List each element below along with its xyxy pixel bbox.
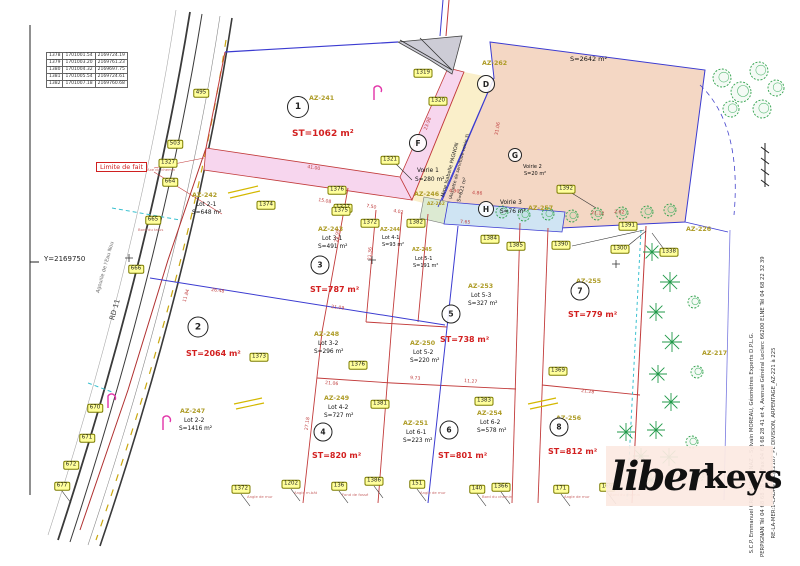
- map-text-label: S=327 m²: [468, 301, 497, 307]
- dimension-label: 9.73: [410, 377, 421, 383]
- point-note-label: Angle de mur: [420, 491, 446, 495]
- lot-total-surface-label: ST=820 m²: [312, 452, 361, 460]
- logo-script-part: liber: [611, 453, 706, 500]
- lot-circle-D: D: [477, 75, 495, 93]
- point-note-label: Fond de fossé: [342, 493, 368, 497]
- survey-point-label: 1369: [549, 367, 568, 376]
- survey-point-label: 151: [409, 480, 425, 489]
- survey-point-label: 1383: [475, 397, 494, 406]
- dimension-label: 27.18: [306, 417, 313, 431]
- parcel-id-label: AZ-252: [427, 203, 445, 208]
- parcel-id-label: AZ-254: [477, 411, 502, 418]
- lot-total-surface-label: ST=1062 m²: [292, 130, 354, 139]
- map-text-label: Lot 6-1: [406, 430, 426, 436]
- lot-circle-7: 7: [571, 282, 590, 301]
- logo-bold-part: keys: [704, 457, 782, 496]
- survey-point-label: 1372: [232, 485, 251, 494]
- map-text-label: Lot 5-1: [415, 257, 432, 262]
- lot-circle-3: 3: [311, 256, 330, 275]
- point-note-label: Angle de mur: [247, 495, 273, 499]
- map-text-label: S=20 m²: [524, 172, 546, 177]
- parcel-id-label: AZ-253: [468, 284, 493, 291]
- dimension-label: 4.86: [472, 192, 483, 198]
- surveyor-address-line: PERPIGNAN Tél 04 68 68 28 40 - Fax 04 68…: [760, 329, 766, 557]
- survey-point-label: 672: [63, 461, 79, 470]
- dimension-label: 2.62: [614, 211, 625, 217]
- map-text-label: Lot 5-2: [413, 350, 433, 356]
- lot-circle-8: 8: [550, 418, 569, 437]
- survey-point-label: 1381: [371, 400, 390, 409]
- survey-point-label: 665: [145, 216, 161, 225]
- point-note-label: Bord du talus: [138, 228, 163, 232]
- parcel-id-label: AZ-246: [414, 192, 439, 199]
- parcel-id-label: AZ-251: [403, 421, 428, 428]
- survey-point-label: 503: [167, 140, 183, 149]
- map-text-label: S=93 m²: [382, 243, 404, 248]
- parcel-id-label: AZ-244: [380, 228, 400, 233]
- dimension-label: 7.50: [366, 205, 377, 212]
- parcel-id-label: AZ-226: [686, 227, 711, 234]
- dimension-label: 23.98: [425, 117, 434, 131]
- lot-total-surface-label: ST=2064 m²: [186, 350, 241, 358]
- parcel-id-label: AZ-245: [412, 248, 432, 253]
- limite-de-fait-label: Limite de fait: [96, 162, 147, 172]
- dimension-label: 21.12: [591, 212, 604, 218]
- survey-point-label: 1375: [332, 207, 351, 216]
- dimension-label: 21.09: [331, 306, 345, 312]
- lot-circle-5: 5: [442, 305, 461, 324]
- point-note-label: Bord du chemin: [482, 495, 512, 499]
- survey-point-label: 1386: [365, 477, 384, 486]
- map-text-label: Lot 2-2: [184, 418, 204, 424]
- survey-point-label: 495: [193, 89, 209, 98]
- map-text-label: Lot 4-2: [328, 405, 348, 411]
- map-text-label: Voirie 2: [523, 165, 542, 170]
- lot-total-surface-label: ST=787 m²: [310, 286, 359, 294]
- survey-point-label: 140: [469, 485, 485, 494]
- map-text-label: S=491 m²: [318, 244, 347, 250]
- map-text-label: S=191 m²: [413, 264, 438, 269]
- survey-point-label: 1384: [481, 235, 500, 244]
- dimension-label: 21.06: [325, 382, 339, 388]
- map-text-label: S=296 m²: [314, 349, 343, 355]
- survey-point-label: 1382: [407, 219, 426, 228]
- lot-total-surface-label: ST=738 m²: [440, 336, 489, 344]
- dimension-label: 31.06: [496, 122, 503, 136]
- dimension-label: 7.65: [460, 221, 471, 227]
- survey-point-label: 136: [331, 482, 347, 491]
- survey-point-label: 1376: [328, 186, 347, 195]
- parcel-id-label: AZ-250: [410, 341, 435, 348]
- lot-circle-2: 2: [188, 317, 209, 338]
- map-text-label: S=280 m²: [415, 177, 444, 183]
- dimension-label: 4.02: [393, 210, 404, 217]
- parcel-id-label: AZ-247: [180, 409, 205, 416]
- map-text-label: S=76 m²: [500, 209, 526, 215]
- parcel-id-label: AZ-242: [192, 193, 217, 200]
- map-text-label: Lot 6-2: [480, 420, 500, 426]
- point-note-label: Angle de mur: [564, 495, 590, 499]
- liberkeys-logo: liberkeys: [606, 446, 773, 506]
- map-text-label: S=2642 m²: [570, 56, 607, 63]
- map-text-label: Voirie 1: [417, 168, 439, 174]
- survey-point-label: 1390: [552, 241, 571, 250]
- map-text-label: Voirie 3: [500, 200, 522, 206]
- survey-point-label: 1327: [159, 159, 178, 168]
- lot-total-surface-label: ST=779 m²: [568, 311, 617, 319]
- map-text-label: S=223 m²: [403, 438, 432, 444]
- surveyor-firm-line: S.C.P. Emmanuel CRETIN-MAITENAZ - Sylvai…: [749, 329, 755, 557]
- dimension-label: 11.84: [184, 289, 192, 303]
- file-reference-line: RE-LA-MER:1-CADASTRE/22187_PL DIVISION, …: [771, 329, 777, 557]
- dimension-label: 21.28: [581, 390, 595, 396]
- dimension-label: 15.08: [318, 199, 332, 206]
- survey-point-label: 1320: [429, 97, 448, 106]
- survey-point-label: 1373: [250, 353, 269, 362]
- survey-point-label: 666: [128, 265, 144, 274]
- survey-point-label: 671: [79, 434, 95, 443]
- map-text-label: S=1416 m²: [179, 426, 212, 432]
- survey-point-label: 1372: [361, 219, 380, 228]
- lot-circle-H: H: [478, 201, 494, 217]
- map-text-label: Lot 2-1: [196, 202, 216, 208]
- survey-point-label: 1392: [557, 185, 576, 194]
- survey-point-label: 1319: [414, 69, 433, 78]
- parcel-id-label: AZ-217: [702, 351, 727, 358]
- dimension-label: 26.48: [211, 289, 225, 295]
- dimension-label: 21.36: [369, 247, 375, 261]
- lot-total-surface-label: ST=801 m²: [438, 452, 487, 460]
- map-text-label: S=578 m²: [477, 428, 506, 434]
- survey-point-label: 1376: [349, 361, 368, 370]
- survey-point-label: 1321: [381, 156, 400, 165]
- parcel-id-label: AZ-262: [482, 61, 507, 68]
- parcel-id-label: AZ-257: [528, 206, 553, 213]
- survey-point-label: 664: [162, 178, 178, 187]
- survey-point-label: 1202: [282, 480, 301, 489]
- map-text-label: S=727 m²: [324, 413, 353, 419]
- map-text-label: S=220 m²: [410, 358, 439, 364]
- lot-circle-6: 6: [440, 421, 459, 440]
- map-text-label: Lot 3-2: [318, 341, 338, 347]
- survey-point-label: 171: [553, 485, 569, 494]
- lot-circle-4: 4: [314, 423, 333, 442]
- survey-point-label: 1385: [507, 242, 526, 251]
- lot-circle-G: G: [508, 148, 522, 162]
- map-text-label: Lot 5-3: [471, 293, 491, 299]
- lot-total-surface-label: ST=812 m²: [548, 448, 597, 456]
- survey-point-label: 1300: [611, 245, 630, 254]
- survey-point-label: 670: [87, 404, 103, 413]
- lot-circle-F: F: [409, 134, 427, 152]
- survey-point-label: 1366: [492, 483, 511, 492]
- survey-point-label: 1374: [257, 201, 276, 210]
- dimension-label: 41.00: [307, 166, 321, 173]
- survey-point-label: 1391: [619, 222, 638, 231]
- parcel-id-label: AZ-248: [314, 332, 339, 339]
- map-text-label: S=648 m²: [192, 210, 221, 216]
- cadastral-plan: 13781701001.542169724.1913791701003.2021…: [0, 0, 800, 566]
- dimension-label: 4.90: [449, 190, 460, 196]
- point-note-label: Angle m.bât: [294, 491, 317, 495]
- map-text-label: Lot 4-1: [382, 236, 399, 241]
- parcel-id-label: AZ-241: [309, 96, 334, 103]
- point-note-label: Axe du chemin: [147, 168, 175, 172]
- lot-circle-1: 1: [287, 96, 309, 118]
- dimension-label: 11.27: [464, 380, 478, 386]
- survey-point-label: 677: [54, 482, 70, 491]
- parcel-id-label: AZ-249: [324, 396, 349, 403]
- survey-point-label: 1338: [660, 248, 679, 257]
